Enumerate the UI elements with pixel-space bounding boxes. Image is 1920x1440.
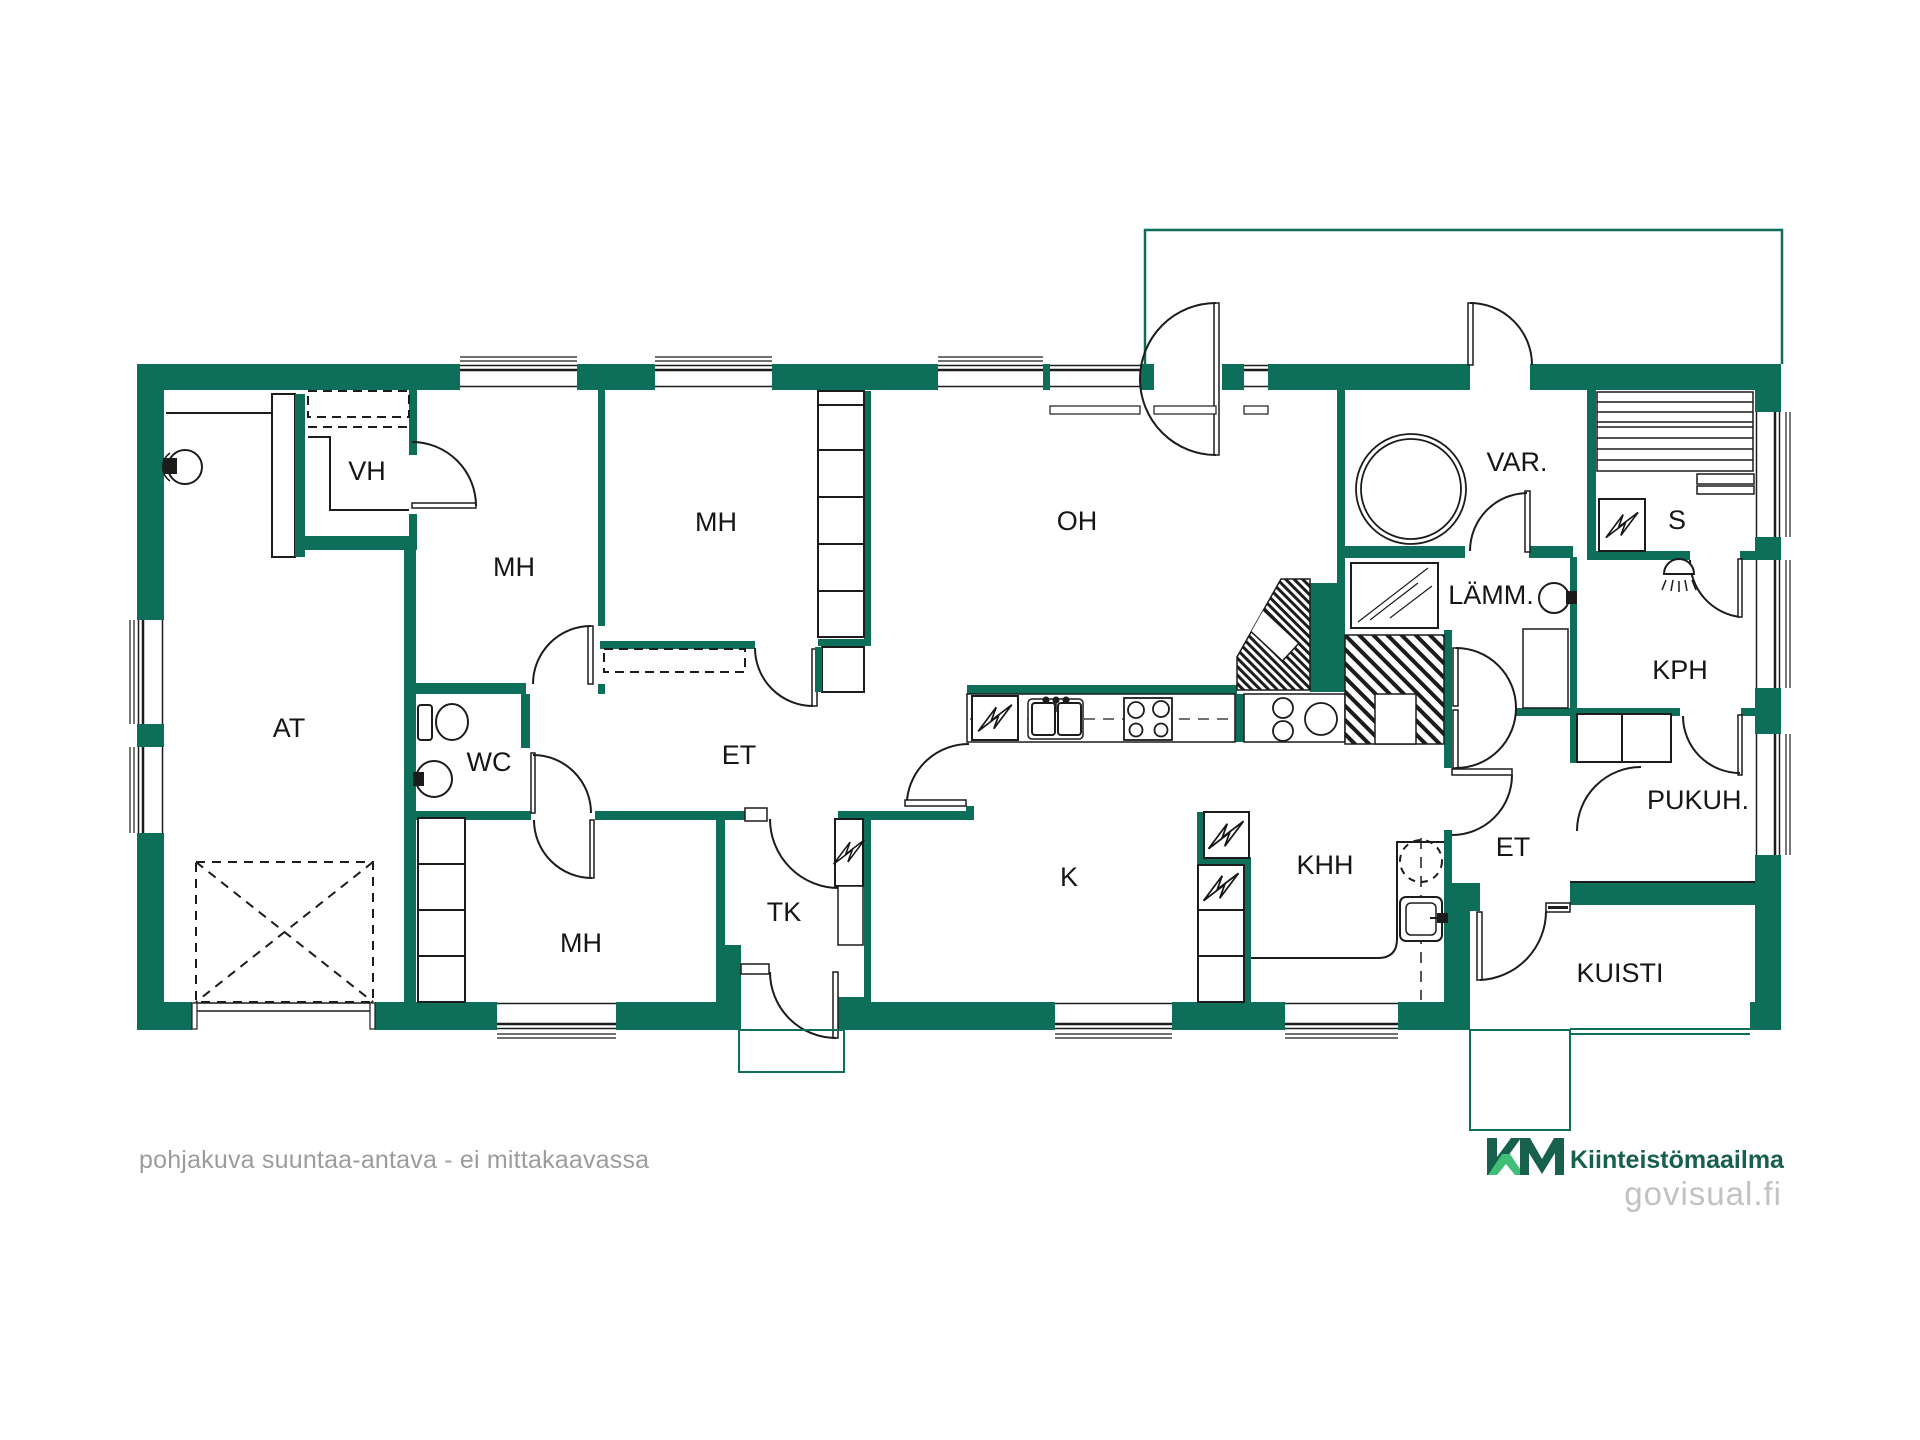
- svg-text:KHH: KHH: [1296, 850, 1353, 880]
- svg-text:ET: ET: [1496, 832, 1531, 862]
- svg-text:pohjakuva suuntaa-antava - ei: pohjakuva suuntaa-antava - ei mittakaava…: [139, 1146, 649, 1174]
- svg-text:MH: MH: [560, 928, 602, 958]
- svg-text:VH: VH: [348, 456, 386, 486]
- svg-text:KUISTI: KUISTI: [1576, 958, 1663, 988]
- svg-text:WC: WC: [467, 747, 512, 777]
- svg-text:govisual.fi: govisual.fi: [1624, 1175, 1782, 1212]
- svg-text:S: S: [1668, 505, 1686, 535]
- svg-text:K: K: [1060, 862, 1078, 892]
- svg-text:LÄMM.: LÄMM.: [1448, 580, 1534, 610]
- svg-text:KPH: KPH: [1652, 655, 1708, 685]
- svg-text:AT: AT: [273, 713, 306, 743]
- svg-text:Kiinteistömaailma: Kiinteistömaailma: [1570, 1146, 1785, 1174]
- svg-text:TK: TK: [767, 897, 802, 927]
- svg-text:MH: MH: [695, 507, 737, 537]
- svg-text:OH: OH: [1057, 506, 1098, 536]
- svg-text:ET: ET: [722, 740, 757, 770]
- svg-text:VAR.: VAR.: [1486, 447, 1547, 477]
- svg-text:PUKUH.: PUKUH.: [1647, 785, 1749, 815]
- svg-text:MH: MH: [493, 552, 535, 582]
